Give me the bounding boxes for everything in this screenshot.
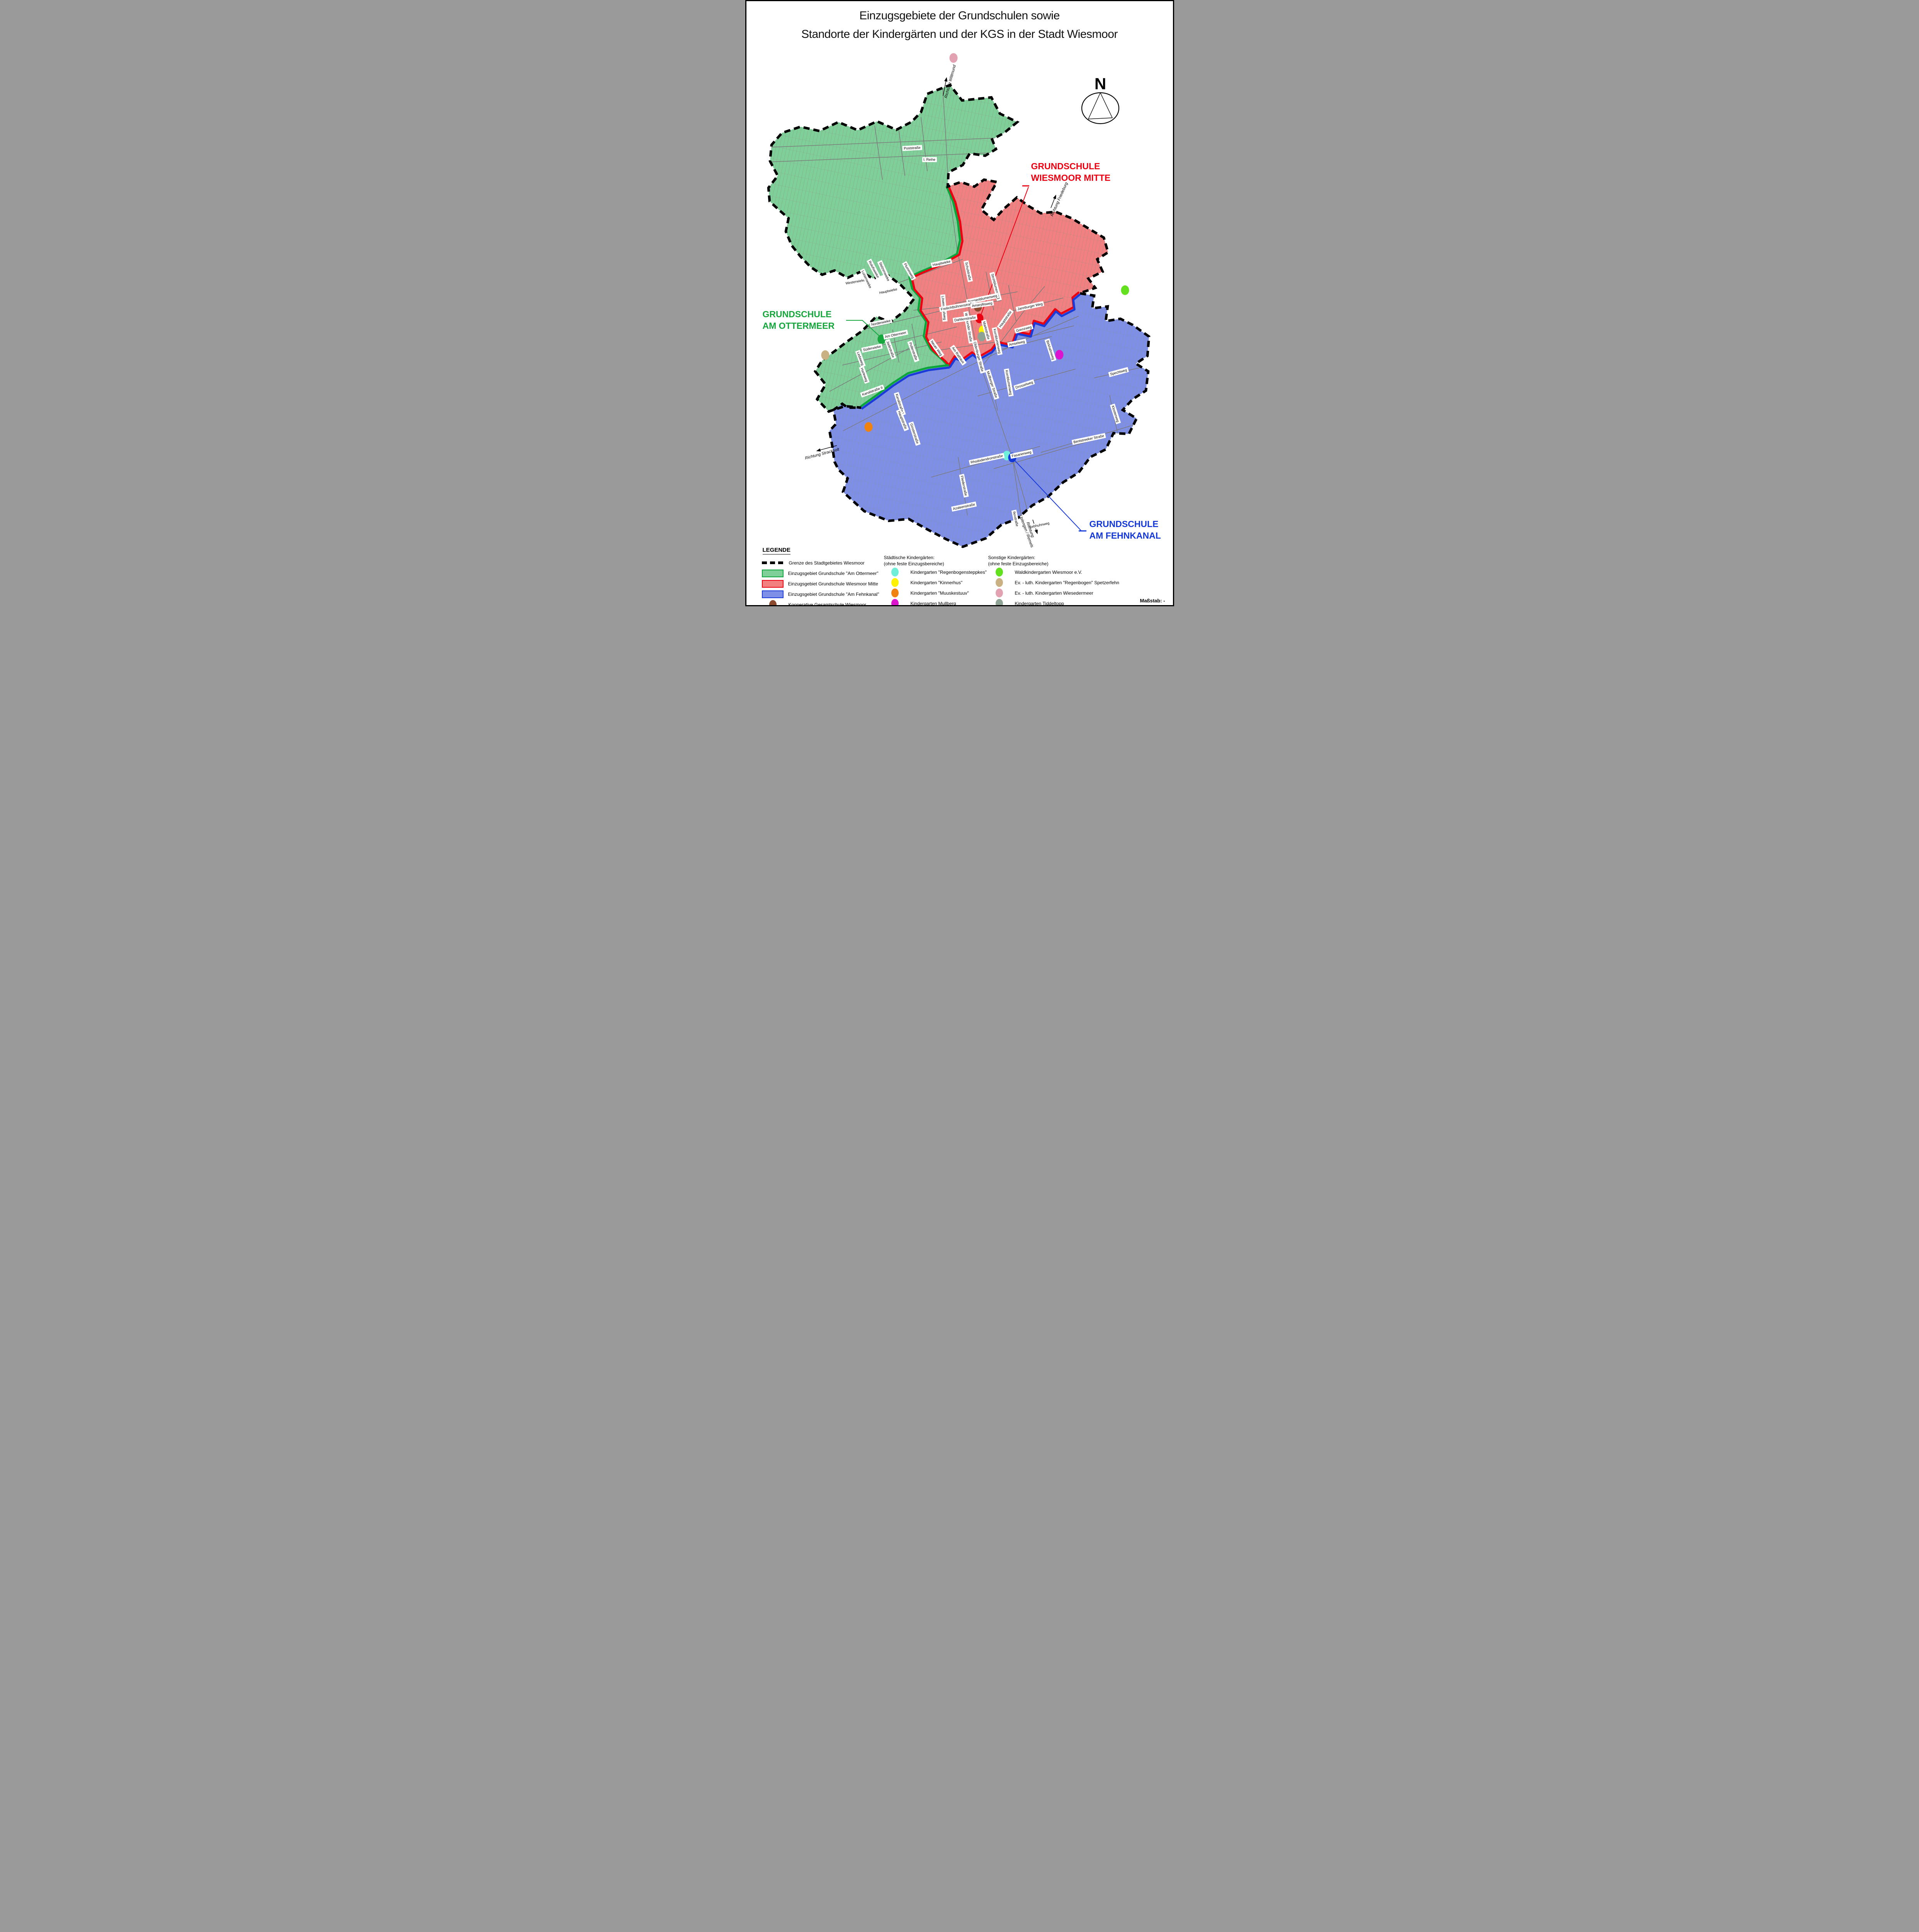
legend-row: Waldkindergarten Wiesmoor e.V. [988, 567, 1119, 577]
am-fehnkanal-label: GRUNDSCHULE AM FEHNKANAL [1090, 518, 1161, 541]
legend-swatch-dot [769, 600, 777, 606]
legend-label: Kindergarten Tiddeltopp [1015, 601, 1064, 606]
legend-other-rows: Waldkindergarten Wiesmoor e.V.Ev. - luth… [988, 567, 1119, 606]
legend-label: Kooperative Gesamtschule Wiesmoor [789, 602, 866, 607]
legend-swatch-dot [996, 578, 1003, 587]
legend-other-subtitle: (ohne feste Einzugsbereiche) [988, 561, 1119, 567]
legend-swatch-rect [762, 570, 784, 577]
legend-other-title: Sonstige Kindergärten: [988, 554, 1119, 561]
legend-row: Einzugsgebiet Grundschule "Am Ottermeer" [762, 568, 879, 578]
legend-row: Einzugsgebiet Grundschule "Am Fehnkanal" [762, 589, 879, 599]
waldkindergarten-wiesmoor-dot [1121, 286, 1129, 295]
legend-areas: Grenze des Stadtgebietes WiesmoorEinzugs… [762, 558, 879, 606]
legend-row: Ev. - luth. Kindergarten Wiesedermeer [988, 588, 1119, 598]
legend-swatch-rect [762, 590, 784, 598]
legend-swatch-dot [996, 599, 1003, 606]
legend-label: Kindergarten "Regenbogensteppkes" [911, 570, 987, 575]
legend-label: Einzugsgebiet Grundschule "Am Ottermeer" [788, 571, 879, 576]
street-label: Poststraße [902, 145, 921, 151]
legend-label: Einzugsgebiet Grundschule "Am Fehnkanal" [788, 592, 879, 597]
legend-swatch-dot [996, 568, 1003, 577]
legend-row: Kindergarten "Kinnerhus" [884, 577, 987, 588]
kindergarten-mullberg-dot [1055, 350, 1063, 360]
street-label: I. Reihe [922, 157, 937, 162]
compass-north-letter: N [1094, 75, 1106, 93]
legend-row: Kooperative Gesamtschule Wiesmoor [762, 599, 879, 606]
legend-municipal: Städtische Kindergärten: (ohne feste Ein… [884, 554, 987, 606]
legend-label: Kindergarten "Kinnerhus" [911, 580, 963, 585]
legend-swatch-dot [891, 568, 899, 577]
legend-label: Waldkindergarten Wiesmoor e.V. [1015, 570, 1083, 575]
legend-row: Grenze des Stadtgebietes Wiesmoor [762, 558, 879, 568]
legend-label: Ev. - luth. Kindergarten "Regenbogen" Sp… [1015, 580, 1119, 585]
compass-circle [1082, 93, 1119, 124]
legend-municipal-rows: Kindergarten "Regenbogensteppkes"Kinderg… [884, 567, 987, 606]
legend-label: Grenze des Stadtgebietes Wiesmoor [789, 560, 865, 566]
legend-label: Kindergarten "Muuskestuuv" [911, 590, 969, 596]
legend-swatch-dot [891, 588, 899, 597]
wiesmoor-mitte-label: GRUNDSCHULE WIESMOOR MITTE [1031, 160, 1111, 184]
compass-rose: N [1082, 75, 1119, 124]
map-sheet: Einzugsgebiete der Grundschulen sowie St… [745, 0, 1174, 606]
kindergarten-muuskestuuv-dot [864, 422, 872, 432]
legend-row: Kindergarten Tiddeltopp [988, 598, 1119, 606]
compass-needle [1088, 93, 1112, 119]
legend-other: Sonstige Kindergärten: (ohne feste Einzu… [988, 554, 1119, 606]
legend-row: Kindergarten Mullberg [884, 598, 987, 606]
legend-swatch-dash [762, 561, 784, 564]
legend-row: Einzugsgebiet Grundschule Wiesmoor Mitte [762, 578, 879, 589]
legend-swatch-dot [996, 588, 1003, 597]
legend-label: Einzugsgebiet Grundschule Wiesmoor Mitte [788, 581, 878, 587]
legend-label: Kindergarten Mullberg [911, 601, 956, 606]
kindergarten-wiesedermeer-dot [949, 53, 957, 63]
legend-row: Ev. - luth. Kindergarten "Regenbogen" Sp… [988, 577, 1119, 588]
legend-municipal-subtitle: (ohne feste Einzugsbereiche) [884, 561, 987, 567]
legend-label: Ev. - luth. Kindergarten Wiesedermeer [1015, 590, 1093, 596]
am-ottermeer-label: GRUNDSCHULE AM OTTERMEER [763, 308, 835, 332]
legend-swatch-dot [891, 599, 899, 606]
legend-swatch-rect [762, 580, 784, 588]
legend-row: Kindergarten "Muuskestuuv" [884, 588, 987, 598]
legend-swatch-dot [891, 578, 899, 587]
legend-row: Kindergarten "Regenbogensteppkes" [884, 567, 987, 577]
legend-municipal-title: Städtische Kindergärten: [884, 554, 987, 561]
scale-label: Maßstab: - [1140, 598, 1165, 604]
kindergarten-regenbogen-spetzerfehn-dot [821, 350, 829, 360]
legend-heading: LEGENDE [763, 547, 791, 554]
